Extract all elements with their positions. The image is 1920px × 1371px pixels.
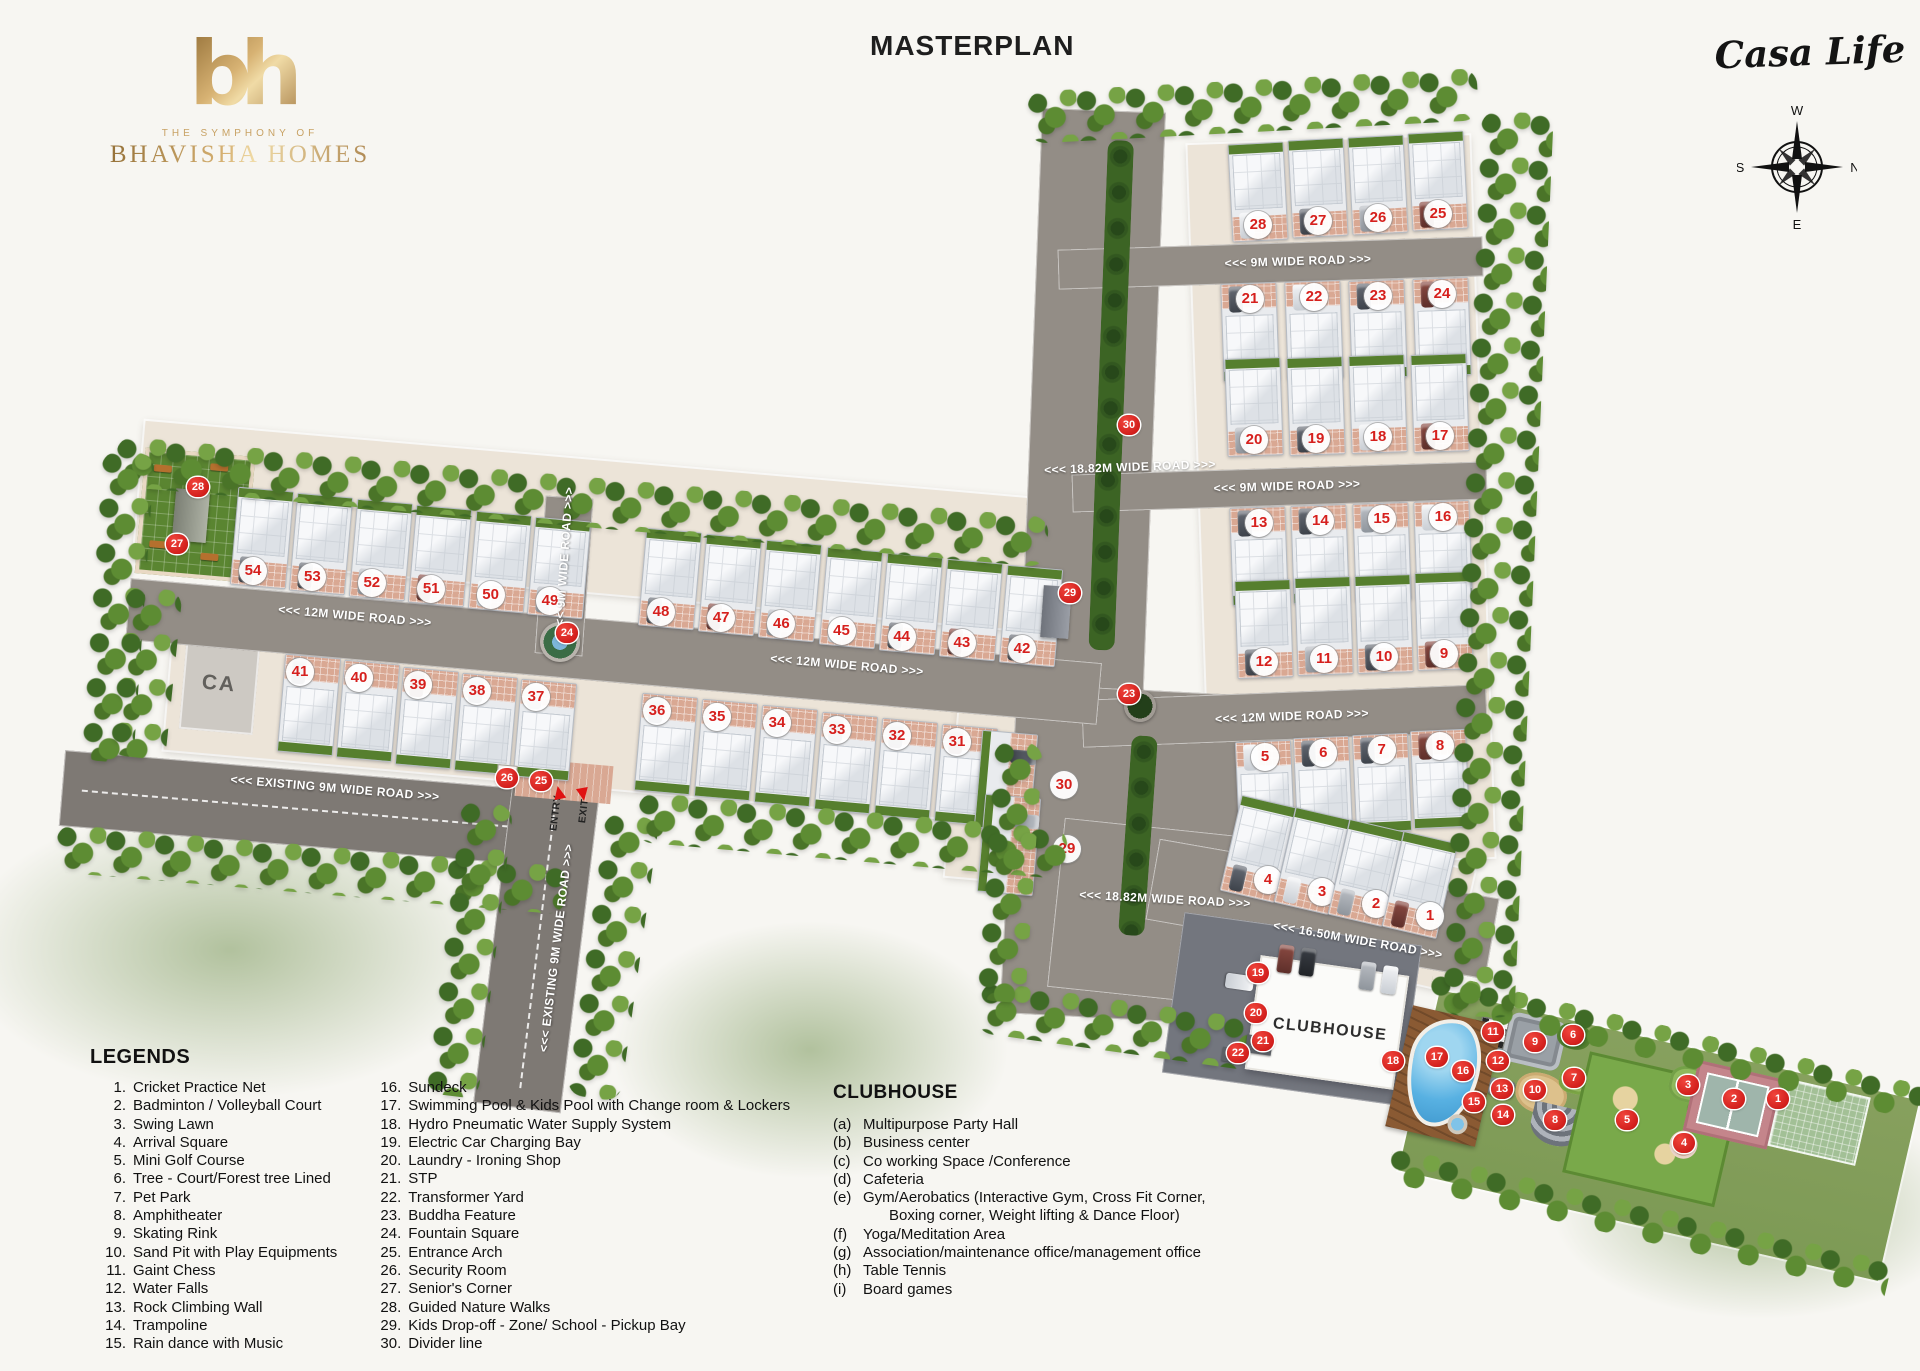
plot-number-52: 52 [358,569,386,597]
entry-arrow-icon [552,785,566,800]
plot-number-48: 48 [647,598,675,626]
plot-garden [1411,354,1465,365]
legend-item: 2.Badminton / Volleyball Court [90,1097,337,1115]
legend-item-text: Cricket Practice Net [133,1079,266,1097]
legend-item: 18.Hydro Pneumatic Water Supply System [365,1116,790,1134]
plot-number-15: 15 [1368,505,1396,533]
plot-number-7: 7 [1368,736,1396,764]
legend-item-text: Rain dance with Music [133,1335,283,1353]
legend-item: 16.Sundeck [365,1079,790,1097]
plot-rooms [1292,149,1343,206]
plot-number-30: 30 [1050,771,1078,799]
amenity-badge-27: 27 [166,534,188,554]
legend-item-number: 11. [90,1262,133,1280]
compass-top-letter: W [1791,103,1804,118]
legend-item: 15.Rain dance with Music [90,1335,337,1353]
amenity-badge-24: 24 [556,623,578,643]
plot-number-38: 38 [463,677,491,705]
clubhouse-item-key: (d) [833,1171,863,1189]
legend-item-number: 29. [365,1317,408,1335]
legend-item-text: Transformer Yard [408,1189,524,1207]
plot-number-54: 54 [239,557,267,585]
legend-item-number: 7. [90,1189,133,1207]
legend-item-number: 15. [90,1335,133,1353]
amenity-badge-2: 2 [1723,1089,1745,1109]
legends-title: LEGENDS [90,1046,790,1069]
legend-item-text: Sand Pit with Play Equipments [133,1244,337,1262]
plot-number-13: 13 [1245,509,1273,537]
legend-item-number: 20. [365,1152,408,1170]
clubhouse-item-text: Table Tennis [863,1262,946,1280]
legend-item: 27.Senior's Corner [365,1280,790,1298]
legend-item-text: Laundry - Ironing Shop [408,1152,561,1170]
plot-number-10: 10 [1370,643,1398,671]
plot-garden [1235,580,1289,591]
plot-rooms [1299,588,1349,645]
plot-garden [1287,357,1341,368]
amenity-badge-16: 16 [1452,1061,1474,1081]
plot-number-42: 42 [1008,635,1036,663]
plot-garden [1225,358,1279,369]
legend-item: 25.Entrance Arch [365,1244,790,1262]
plot-rooms [765,551,818,610]
plot-number-16: 16 [1429,503,1457,531]
clubhouse-item-key: (c) [833,1153,863,1171]
plot-rooms [1231,807,1290,871]
plot-number-19: 19 [1302,425,1330,453]
legend-item-number: 25. [365,1244,408,1262]
amenity-badge-14: 14 [1492,1105,1514,1125]
plot-number-50: 50 [477,581,505,609]
legend-item-number: 21. [365,1170,408,1188]
legend-item-number: 18. [365,1116,408,1134]
plot-number-44: 44 [888,623,916,651]
project-name: Casa Life [1699,26,1920,78]
plot-rooms [459,705,512,764]
legend-item: 10.Sand Pit with Play Equipments [90,1244,337,1262]
plot-rooms [1393,843,1452,907]
legend-item-number: 30. [365,1335,408,1353]
plot-number-31: 31 [943,728,971,756]
legend-item-number: 13. [90,1299,133,1317]
legend-item-number: 14. [90,1317,133,1335]
clubhouse-legend-item: (a)Multipurpose Party Hall [833,1116,1206,1134]
bench [149,540,168,549]
plot-number-35: 35 [703,703,731,731]
amenity-badge-4: 4 [1673,1133,1695,1153]
plot-rooms [400,698,453,757]
plot-number-26: 26 [1364,204,1392,232]
clubhouse-item-key: (g) [833,1244,863,1262]
legend-item-number: 1. [90,1079,133,1097]
brand-logo: bh THE SYMPHONY OF BHAVISHA HOMES [100,30,380,169]
svg-text:bh: bh [189,30,296,122]
legend-item: 13.Rock Climbing Wall [90,1299,337,1317]
amenity-badge-26: 26 [496,768,518,788]
plot-number-43: 43 [948,629,976,657]
plot-rooms [1352,145,1403,202]
plot-number-21: 21 [1236,285,1264,313]
legend-item: 6.Tree - Court/Forest tree Lined [90,1170,337,1188]
amenity-badge-11: 11 [1482,1022,1504,1042]
clubhouse-item-key: (f) [833,1226,863,1244]
legend-item: 24.Fountain Square [365,1225,790,1243]
clubhouse-legend-item: (e)Gym/Aerobatics (Interactive Gym, Cros… [833,1189,1206,1207]
legend-item: 5.Mini Golf Course [90,1152,337,1170]
amenity-badge-19: 19 [1247,963,1269,983]
page-title: MASTERPLAN [870,30,1074,62]
legend-item: 20.Laundry - Ironing Shop [365,1152,790,1170]
plot-number-20: 20 [1240,426,1268,454]
amenity-badge-13: 13 [1491,1079,1513,1099]
plot-number-23: 23 [1364,282,1392,310]
legend-item-text: Security Room [408,1262,506,1280]
legend-item: 17.Swimming Pool & Kids Pool with Change… [365,1097,790,1115]
plot-number-28: 28 [1244,211,1272,239]
plot-rooms [415,516,468,575]
legend-item-number: 2. [90,1097,133,1115]
amenity-badge-29: 29 [1059,583,1081,603]
legend-item-text: Swing Lawn [133,1116,214,1134]
legend-item: 28.Guided Nature Walks [365,1299,790,1317]
amenity-badge-9: 9 [1524,1032,1546,1052]
legend-item: 29.Kids Drop-off - Zone/ School - Pickup… [365,1317,790,1335]
legend-item-text: Amphitheater [133,1207,222,1225]
legend-item-number: 23. [365,1207,408,1225]
legend-item-number: 26. [365,1262,408,1280]
clubhouse-item-text: Yoga/Meditation Area [863,1226,1005,1244]
plot-rooms [645,539,698,598]
amenity-badge-22: 22 [1227,1043,1249,1063]
legend-item-text: Kids Drop-off - Zone/ School - Pickup Ba… [408,1317,685,1335]
legend-item-number: 6. [90,1170,133,1188]
plot-rooms [885,564,938,623]
compass-bottom-letter: E [1793,217,1802,230]
legend-item: 9.Skating Rink [90,1225,337,1243]
legend-item-text: Sundeck [408,1079,466,1097]
clubhouse-item-key: (h) [833,1262,863,1280]
clubhouse-legend-item: (h)Table Tennis [833,1262,1206,1280]
compass-right-letter: N [1850,160,1857,175]
plot-number-36: 36 [643,697,671,725]
bh-monogram-icon: bh [170,30,310,122]
plot-rooms [705,545,758,604]
legends-column-2: 16.Sundeck17.Swimming Pool & Kids Pool w… [365,1079,790,1353]
plot-rooms [1232,153,1283,210]
masterplan-page: MASTERPLAN bh THE SYMPHONY OF BHAVISHA H… [0,0,1920,1371]
amenity-badge-3: 3 [1677,1075,1699,1095]
amenity-badge-12: 12 [1487,1051,1509,1071]
amenity-badge-20: 20 [1245,1003,1267,1023]
legend-item-number: 16. [365,1079,408,1097]
legend-item-number: 17. [365,1097,408,1115]
brand-name: BHAVISHA HOMES [100,141,380,169]
clubhouse-item-key: (b) [833,1134,863,1152]
legend-item-text: Badminton / Volleyball Court [133,1097,321,1115]
swimming-pool [1395,1011,1490,1134]
legend-item-number: 22. [365,1189,408,1207]
legend-item: 12.Water Falls [90,1280,337,1298]
clubhouse-item-text: Multipurpose Party Hall [863,1116,1018,1134]
amenity-badge-30: 30 [1118,415,1140,435]
plot-rooms [1357,765,1407,822]
plot-number-37: 37 [522,683,550,711]
plot-rooms [945,570,998,629]
plot-rooms [1339,831,1398,895]
compass-rose-icon: W N E S [1737,100,1857,230]
clubhouse-legend-item: (b)Business center [833,1134,1206,1152]
clubhouse-item-text: Cafeteria [863,1171,924,1189]
legend-item-number: 5. [90,1152,133,1170]
legend-item: 3.Swing Lawn [90,1116,337,1134]
amenity-badge-21: 21 [1252,1031,1274,1051]
clubhouse-item-text: Gym/Aerobatics (Interactive Gym, Cross F… [863,1189,1206,1207]
legend-item-text: Skating Rink [133,1225,217,1243]
plot-number-39: 39 [404,671,432,699]
plot-rooms [819,744,872,803]
legend-item-text: STP [408,1170,437,1188]
plot-rooms [759,737,812,796]
legend-item: 30.Divider line [365,1335,790,1353]
plot-number-51: 51 [417,575,445,603]
amenity-badge-18: 18 [1382,1051,1404,1071]
plot-rooms [341,692,394,751]
clubhouse-item-text: Board games [863,1281,952,1299]
clubhouse-item-key: (a) [833,1116,863,1134]
amenity-badge-17: 17 [1426,1047,1448,1067]
legends-panel: LEGENDS 1.Cricket Practice Net2.Badminto… [90,1046,790,1353]
plot-number-33: 33 [823,716,851,744]
amenity-badge-1: 1 [1767,1089,1789,1109]
amenity-badge-10: 10 [1524,1080,1546,1100]
plot-rooms [474,522,527,581]
plot-rooms [1359,585,1409,642]
clubhouse-legend-title: CLUBHOUSE [833,1082,1206,1104]
clubhouse-legend-item: (i)Board games [833,1281,1206,1299]
ca-area-label: CA [201,671,237,698]
plot-rooms [825,558,878,617]
clubhouse-item-text: Co working Space /Conference [863,1153,1071,1171]
clubhouse-item-text: Association/maintenance office/managemen… [863,1244,1201,1262]
amenity-badge-25: 25 [530,771,552,791]
plot-number-5: 5 [1251,743,1279,771]
plot-rooms [1229,368,1279,425]
legend-item: 11.Gaint Chess [90,1262,337,1280]
legend-item: 8.Amphitheater [90,1207,337,1225]
amenity-badge-23: 23 [1118,684,1140,704]
legend-item-number: 10. [90,1244,133,1262]
clubhouse-legend-panel: CLUBHOUSE (a)Multipurpose Party Hall(b)B… [833,1082,1206,1299]
amenity-badge-5: 5 [1616,1110,1638,1130]
clubhouse-item-text: Business center [863,1134,970,1152]
clubhouse-legend-item: (g)Association/maintenance office/manage… [833,1244,1206,1262]
legend-item-text: Rock Climbing Wall [133,1299,262,1317]
clubhouse-item-key: (i) [833,1281,863,1299]
legend-item-text: Entrance Arch [408,1244,502,1262]
plot-rooms [1291,367,1341,424]
plot-rooms [639,725,692,784]
plot-number-25: 25 [1424,200,1452,228]
legend-item-text: Fountain Square [408,1225,519,1243]
legend-item-number: 9. [90,1225,133,1243]
legend-item-text: Trampoline [133,1317,207,1335]
plot-rooms [1285,819,1344,883]
amenity-badge-6: 6 [1562,1025,1584,1045]
legend-item-text: Tree - Court/Forest tree Lined [133,1170,331,1188]
bench [200,553,219,562]
legend-item: 22.Transformer Yard [365,1189,790,1207]
legend-item-text: Divider line [408,1335,482,1353]
legend-item-number: 27. [365,1280,408,1298]
legend-item-text: Arrival Square [133,1134,228,1152]
plot-number-17: 17 [1426,422,1454,450]
legend-item: 14.Trampoline [90,1317,337,1335]
legend-item-number: 8. [90,1207,133,1225]
legend-item: 1.Cricket Practice Net [90,1079,337,1097]
legend-item: 26.Security Room [365,1262,790,1280]
clubhouse-legend-item: (d)Cafeteria [833,1171,1206,1189]
legend-item-text: Hydro Pneumatic Water Supply System [408,1116,671,1134]
legend-item-text: Water Falls [133,1280,208,1298]
legend-item-number: 19. [365,1134,408,1152]
plot-rooms [699,731,752,790]
legend-item-text: Buddha Feature [408,1207,516,1225]
plot-number-12: 12 [1250,648,1278,676]
plot-number-9: 9 [1430,640,1458,668]
legend-item-text: Senior's Corner [408,1280,512,1298]
legend-item-text: Pet Park [133,1189,191,1207]
clubhouse-legend-item: (c)Co working Space /Conference [833,1153,1206,1171]
plot-number-41: 41 [286,658,314,686]
plot-rooms [237,498,290,557]
legend-item-text: Gaint Chess [133,1262,216,1280]
plot-rooms [1239,590,1289,647]
legend-item-text: Electric Car Charging Bay [408,1134,581,1152]
legend-item-number: 28. [365,1299,408,1317]
clubhouse-legend-item: (f)Yoga/Meditation Area [833,1226,1206,1244]
plot-number-24: 24 [1428,280,1456,308]
plot-rooms [296,504,349,563]
legend-item-number: 3. [90,1116,133,1134]
legend-item: 21.STP [365,1170,790,1188]
plot-rooms [282,686,335,745]
brand-tagline: THE SYMPHONY OF [100,128,380,139]
amenity-badge-7: 7 [1563,1068,1585,1088]
legend-item-text: Swimming Pool & Kids Pool with Change ro… [408,1097,790,1115]
plot-rooms [1353,366,1403,423]
plot-number-32: 32 [883,722,911,750]
legend-item-number: 12. [90,1280,133,1298]
legends-column-1: 1.Cricket Practice Net2.Badminton / Voll… [90,1079,337,1353]
plot-rooms [355,510,408,569]
legend-item: 7.Pet Park [90,1189,337,1207]
legend-item: 23.Buddha Feature [365,1207,790,1225]
plot-number-1: 1 [1416,902,1444,930]
exit-arrow-icon [576,787,590,802]
plot-garden [1355,575,1409,586]
amenity-badge-28: 28 [187,477,209,497]
amenity-badge-15: 15 [1463,1092,1485,1112]
clubhouse-item-text-wrap: Boxing corner, Weight lifting & Dance Fl… [833,1207,1206,1225]
compass-left-letter: S [1737,160,1745,175]
clubhouse-item-key: (e) [833,1189,863,1207]
legend-item-text: Mini Golf Course [133,1152,245,1170]
legend-item-text: Guided Nature Walks [408,1299,550,1317]
legend-item: 19.Electric Car Charging Bay [365,1134,790,1152]
plot-rooms [518,711,571,770]
plot-number-45: 45 [828,617,856,645]
plot-rooms [1415,364,1465,421]
clubhouse-legend-items: (a)Multipurpose Party Hall(b)Business ce… [833,1116,1206,1299]
legend-item: 4.Arrival Square [90,1134,337,1152]
plot-number-8: 8 [1426,732,1454,760]
legend-item-number: 4. [90,1134,133,1152]
legend-item-number: 24. [365,1225,408,1243]
amenity-badge-8: 8 [1544,1110,1566,1130]
plot-rooms [879,750,932,809]
plot-rooms [1412,142,1463,199]
